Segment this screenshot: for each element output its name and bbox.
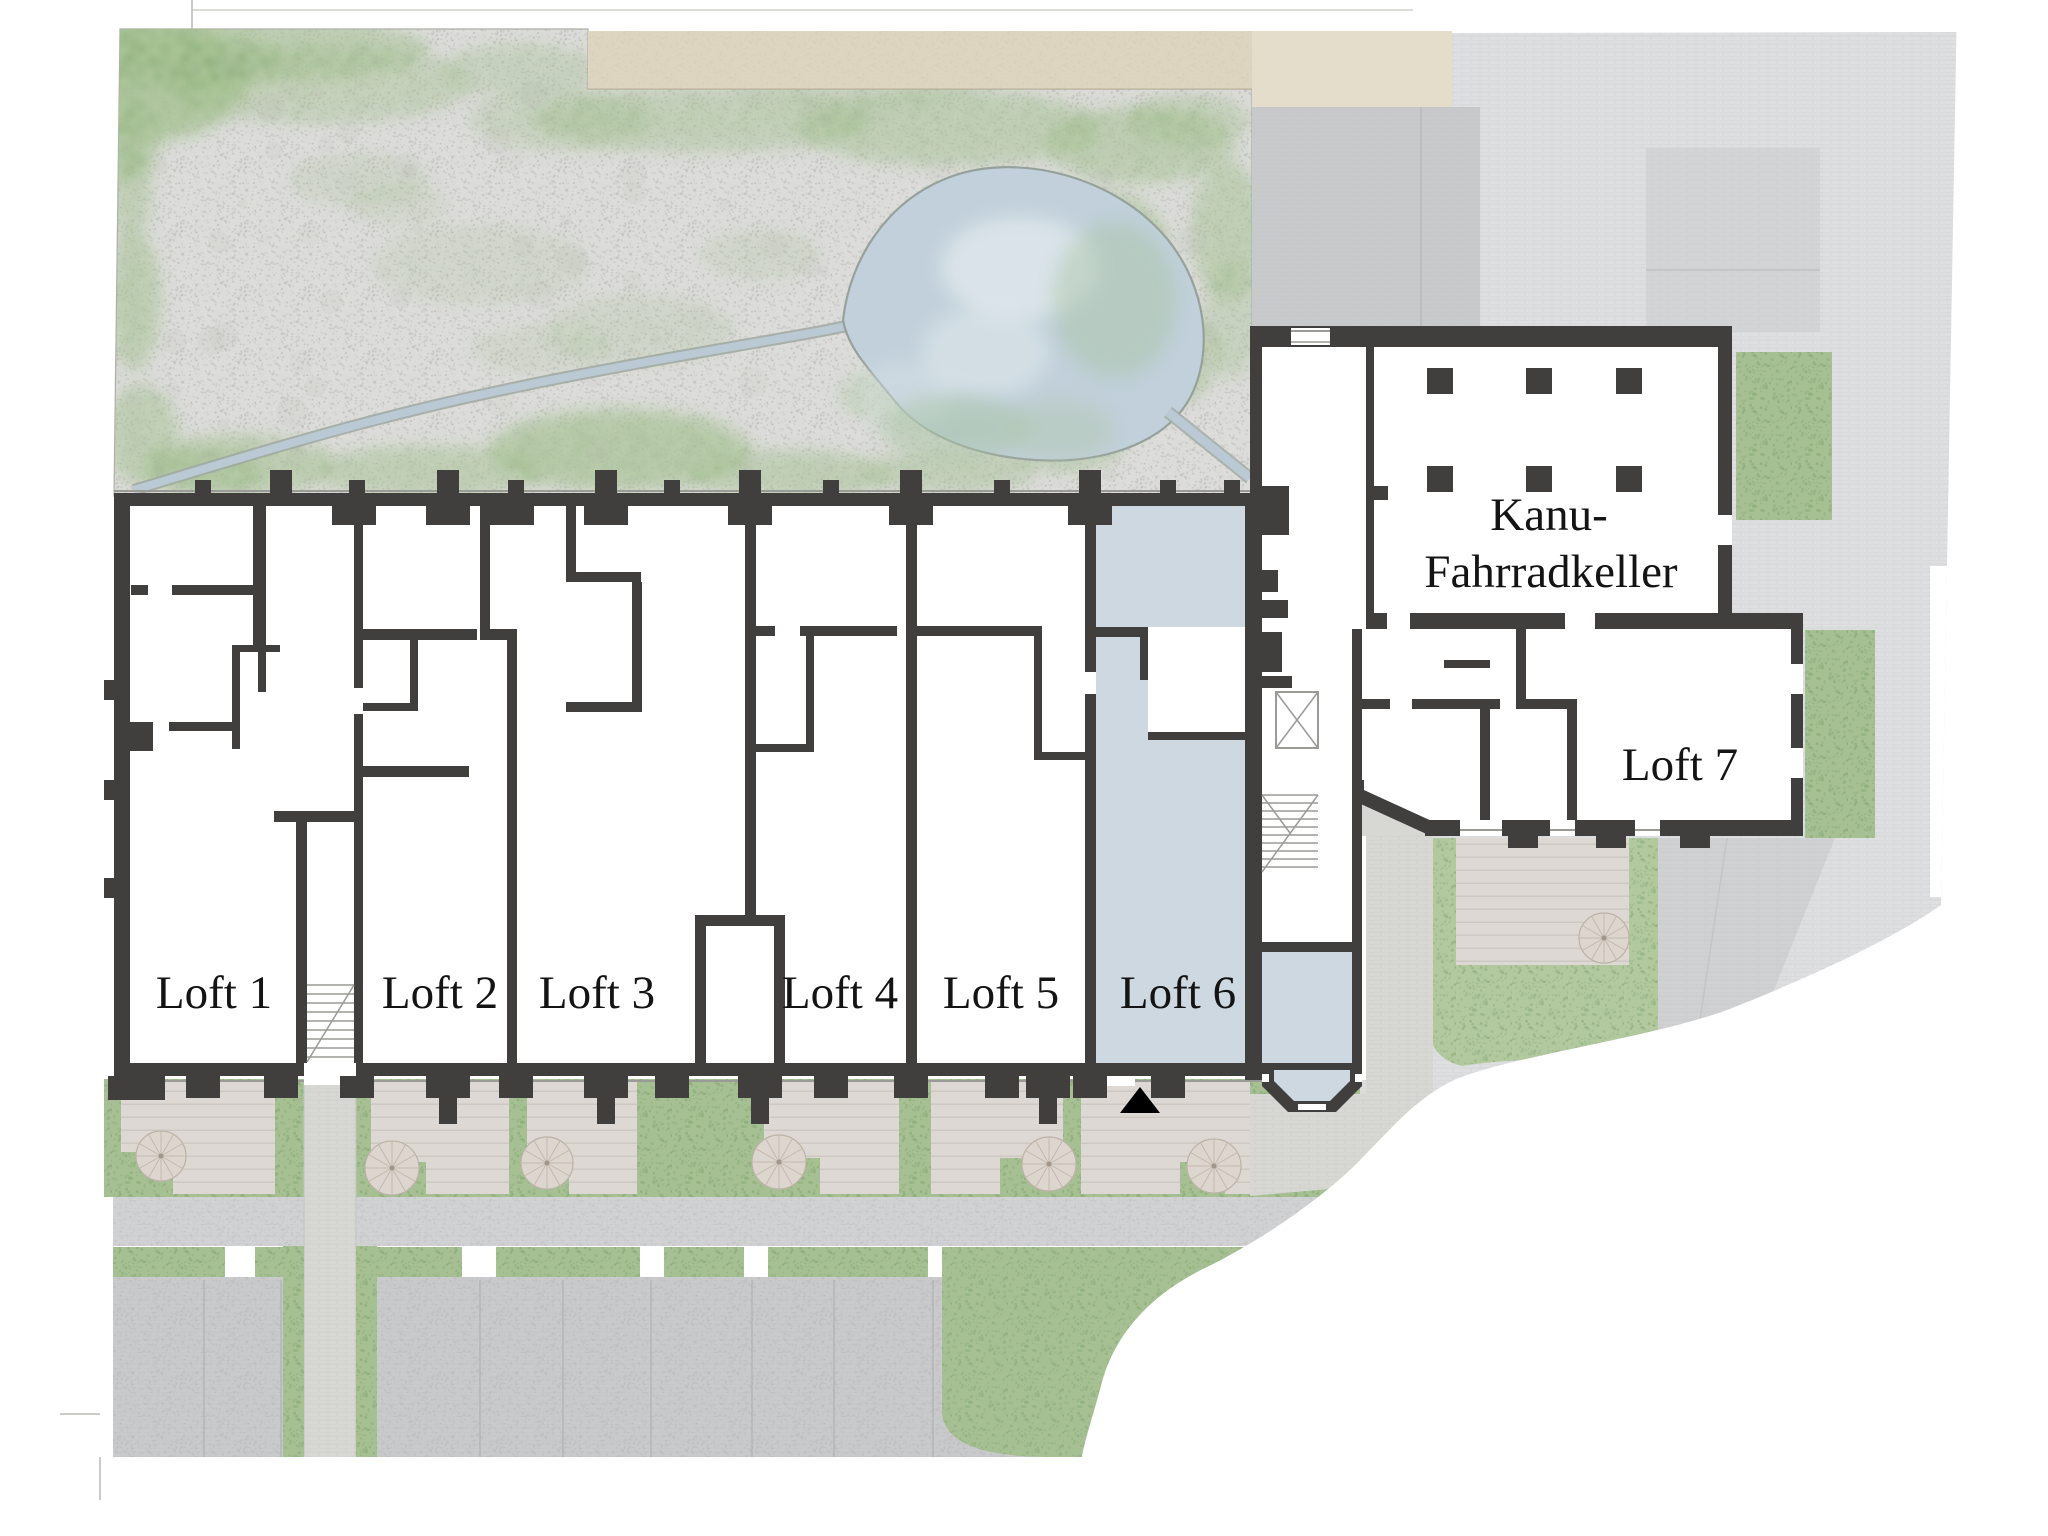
svg-text:Loft 6: Loft 6 bbox=[1120, 967, 1236, 1019]
svg-text:Loft 1: Loft 1 bbox=[156, 967, 272, 1019]
svg-text:Fahrradkeller: Fahrradkeller bbox=[1424, 546, 1678, 598]
svg-text:Loft 4: Loft 4 bbox=[782, 967, 898, 1019]
svg-text:Loft 5: Loft 5 bbox=[943, 967, 1059, 1019]
svg-text:Loft 3: Loft 3 bbox=[539, 967, 655, 1019]
svg-text:Loft 7: Loft 7 bbox=[1622, 739, 1738, 791]
svg-text:Kanu-: Kanu- bbox=[1490, 489, 1607, 541]
svg-text:Loft 2: Loft 2 bbox=[382, 967, 498, 1019]
